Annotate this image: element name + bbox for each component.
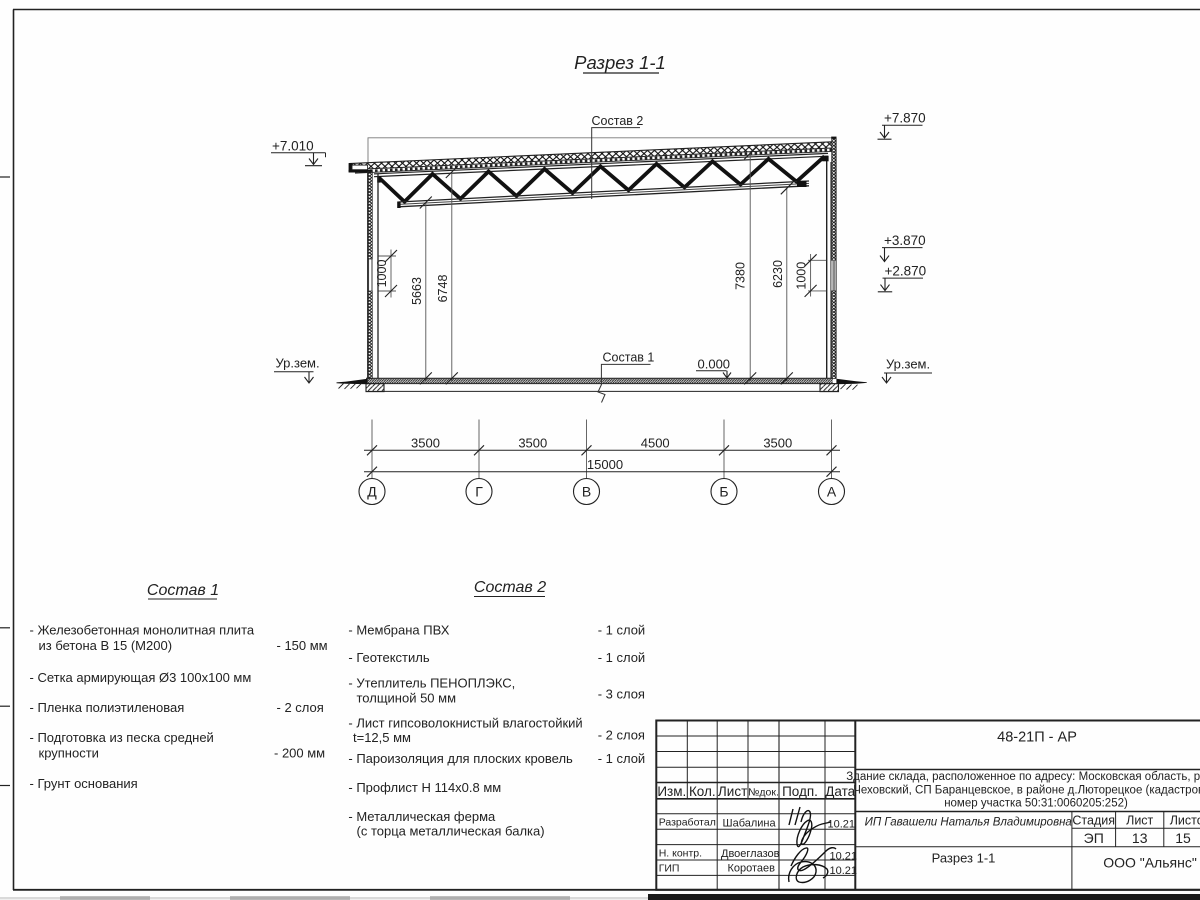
svg-text:ЭП: ЭП	[1084, 830, 1104, 846]
svg-text:3500: 3500	[411, 436, 440, 451]
svg-text:48-21П - АР: 48-21П - АР	[997, 730, 1077, 746]
svg-text:t=12,5 мм: t=12,5 мм	[353, 730, 411, 745]
svg-text:толщиной 50 мм: толщиной 50 мм	[357, 690, 457, 705]
svg-text:(с торца металлическая балка): (с торца металлическая балка)	[357, 824, 545, 839]
svg-text:Стадия: Стадия	[1072, 814, 1115, 828]
svg-text:- Мембрана ПВХ: - Мембрана ПВХ	[348, 623, 449, 638]
svg-text:Г: Г	[475, 484, 483, 500]
svg-text:Шабалина: Шабалина	[723, 818, 777, 830]
svg-text:+7.870: +7.870	[884, 111, 926, 126]
svg-text:1000: 1000	[375, 260, 389, 288]
svg-text:4500: 4500	[641, 436, 670, 451]
svg-text:- Грунт основания: - Грунт основания	[30, 776, 138, 791]
svg-text:номер участка 50:31:0060205:25: номер участка 50:31:0060205:252)	[944, 798, 1128, 810]
svg-text:Лист: Лист	[718, 784, 747, 799]
svg-text:- 2 слоя: - 2 слоя	[598, 728, 645, 743]
svg-text:Состав 1: Состав 1	[147, 582, 219, 599]
svg-text:+2.870: +2.870	[885, 264, 927, 279]
svg-text:- Сетка армирующая Ø3 100х100: - Сетка армирующая Ø3 100х100 мм	[30, 670, 252, 685]
svg-text:- 1 слой: - 1 слой	[598, 751, 646, 766]
svg-text:из бетона В 15 (М200): из бетона В 15 (М200)	[39, 638, 173, 653]
svg-text:№док.: №док.	[748, 787, 779, 799]
svg-text:Б: Б	[719, 484, 728, 500]
svg-text:- Геотекстиль: - Геотекстиль	[348, 650, 429, 665]
svg-text:6230: 6230	[771, 260, 785, 288]
svg-text:- Пленка полиэтиленовая: - Пленка полиэтиленовая	[30, 700, 185, 715]
svg-text:Дата: Дата	[825, 784, 855, 799]
svg-text:Двоеглазов: Двоеглазов	[721, 848, 780, 860]
svg-text:- 3 слоя: - 3 слоя	[598, 687, 645, 702]
svg-text:- Утеплитель ПЕНОПЛЭКС,: - Утеплитель ПЕНОПЛЭКС,	[348, 676, 515, 691]
svg-text:3500: 3500	[763, 436, 792, 451]
svg-text:Состав 2: Состав 2	[474, 579, 546, 596]
svg-text:Ур.зем.: Ур.зем.	[886, 357, 930, 372]
svg-text:Разработал: Разработал	[659, 817, 716, 829]
svg-text:Кол.: Кол.	[689, 784, 716, 799]
svg-text:Разрез 1-1: Разрез 1-1	[932, 851, 996, 866]
svg-text:- 2 слоя: - 2 слоя	[277, 700, 324, 715]
svg-text:Подп.: Подп.	[782, 784, 818, 799]
svg-text:Изм.: Изм.	[657, 784, 686, 799]
svg-text:0.000: 0.000	[698, 357, 731, 372]
svg-text:- Профлист Н 114х0.8 мм: - Профлист Н 114х0.8 мм	[348, 780, 501, 795]
svg-text:+7.010: +7.010	[272, 139, 314, 154]
svg-text:Здание склада, расположенное п: Здание склада, расположенное по адресу: …	[846, 771, 1200, 783]
svg-text:Н. контр.: Н. контр.	[659, 848, 702, 860]
svg-text:15000: 15000	[587, 457, 623, 472]
svg-text:- 1 слой: - 1 слой	[598, 650, 646, 665]
svg-text:10.21: 10.21	[830, 865, 858, 877]
svg-text:А: А	[827, 484, 837, 500]
svg-text:Д: Д	[367, 484, 377, 500]
svg-text:- 1 слой: - 1 слой	[598, 623, 646, 638]
svg-text:7380: 7380	[734, 262, 748, 290]
svg-text:1000: 1000	[794, 262, 808, 290]
svg-text:- Подготовка из песка средней: - Подготовка из песка средней	[30, 730, 214, 745]
svg-text:5663: 5663	[410, 277, 424, 305]
svg-text:Чеховский, СП Баранцевское, в: Чеховский, СП Баранцевское, в районе д.Л…	[853, 784, 1200, 796]
svg-text:10.21: 10.21	[828, 819, 856, 831]
svg-text:ООО "Альянс": ООО "Альянс"	[1103, 855, 1197, 871]
svg-text:3500: 3500	[518, 436, 547, 451]
svg-text:13: 13	[1132, 830, 1148, 846]
svg-text:- Пароизоляция для плоских кро: - Пароизоляция для плоских кровель	[348, 751, 573, 766]
svg-text:Разрез 1-1: Разрез 1-1	[574, 52, 666, 73]
svg-text:В: В	[582, 484, 591, 500]
svg-text:Листов: Листов	[1170, 814, 1200, 828]
svg-text:- Металлическая ферма: - Металлическая ферма	[348, 809, 496, 824]
svg-text:- Лист гипсоволокнистый влагос: - Лист гипсоволокнистый влагостойкий	[348, 715, 582, 730]
svg-text:10.21: 10.21	[830, 851, 858, 863]
svg-text:Коротаев: Коротаев	[728, 863, 776, 875]
svg-text:ИП Гавашели Наталья Владимиров: ИП Гавашели Наталья Владимировна	[865, 817, 1072, 829]
svg-text:Лист: Лист	[1126, 814, 1153, 828]
svg-text:15: 15	[1175, 830, 1191, 846]
svg-text:- 200 мм: - 200 мм	[274, 746, 325, 761]
svg-text:ГИП: ГИП	[659, 863, 680, 875]
svg-text:+3.870: +3.870	[884, 233, 926, 248]
svg-text:Состав 2: Состав 2	[592, 114, 644, 128]
svg-text:6748: 6748	[436, 275, 450, 303]
svg-text:- 150 мм: - 150 мм	[277, 638, 328, 653]
svg-text:- Железобетонная монолитная п: - Железобетонная монолитная плита	[30, 623, 255, 638]
svg-text:крупности: крупности	[39, 746, 99, 761]
svg-text:Ур.зем.: Ур.зем.	[276, 356, 320, 371]
svg-text:Состав 1: Состав 1	[603, 351, 655, 365]
